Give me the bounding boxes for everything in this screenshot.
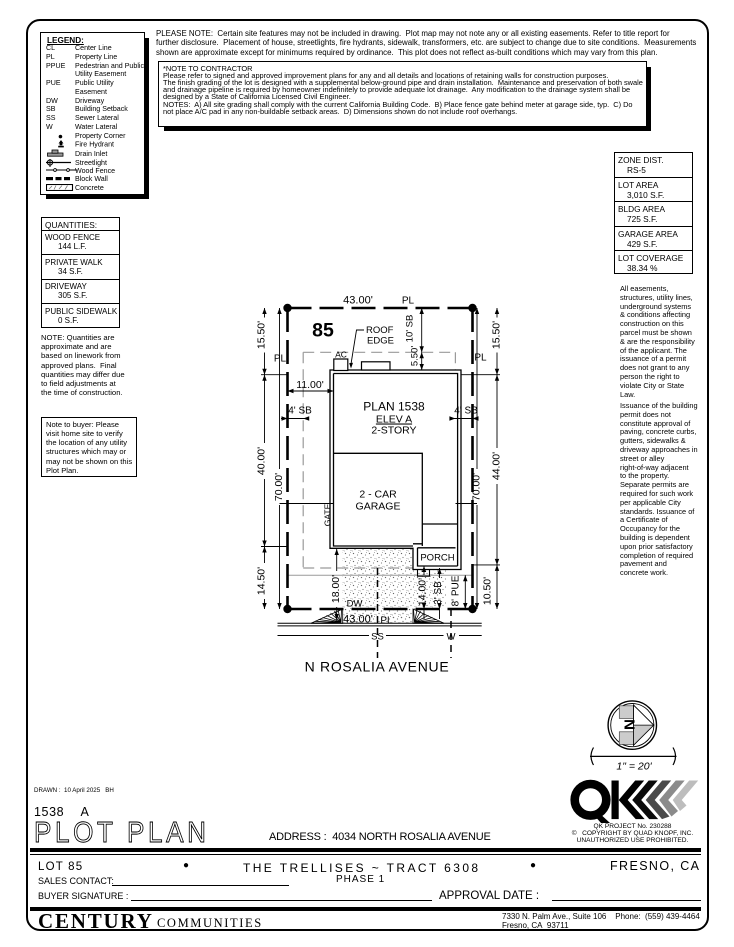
svg-text:43.00': 43.00' bbox=[343, 614, 373, 626]
svg-text:AC: AC bbox=[335, 350, 347, 360]
svg-text:DW: DW bbox=[347, 599, 363, 610]
svg-text:43.00': 43.00' bbox=[343, 295, 373, 307]
svg-text:PL: PL bbox=[274, 354, 287, 365]
svg-text:10.50': 10.50' bbox=[482, 577, 494, 605]
svg-text:1" = 20': 1" = 20' bbox=[616, 761, 652, 773]
svg-text:11.00': 11.00' bbox=[296, 379, 324, 391]
svg-text:2-STORY: 2-STORY bbox=[371, 425, 416, 437]
svg-text:3' SB: 3' SB bbox=[433, 581, 444, 605]
svg-text:8' PUE: 8' PUE bbox=[451, 575, 462, 606]
svg-text:N: N bbox=[621, 719, 638, 730]
svg-text:5.50': 5.50' bbox=[410, 346, 421, 366]
svg-text:14.50': 14.50' bbox=[256, 567, 268, 595]
svg-text:15.50': 15.50' bbox=[491, 321, 503, 349]
svg-text:EDGE: EDGE bbox=[367, 336, 394, 347]
svg-text:GARAGE: GARAGE bbox=[356, 501, 401, 513]
svg-text:SS: SS bbox=[371, 632, 384, 643]
svg-text:W: W bbox=[447, 632, 456, 643]
svg-text:4' SB: 4' SB bbox=[454, 406, 478, 417]
svg-text:PORCH: PORCH bbox=[420, 553, 454, 564]
svg-text:PL: PL bbox=[380, 616, 393, 627]
svg-text:18.00': 18.00' bbox=[330, 575, 342, 603]
svg-text:40.00': 40.00' bbox=[256, 447, 268, 475]
svg-text:44.00': 44.00' bbox=[491, 452, 503, 480]
svg-text:70.00': 70.00' bbox=[471, 473, 483, 501]
svg-text:PL: PL bbox=[402, 296, 415, 307]
svg-text:15.50': 15.50' bbox=[256, 321, 268, 349]
svg-text:70.00': 70.00' bbox=[273, 473, 285, 501]
svg-text:GATE: GATE bbox=[323, 503, 333, 526]
svg-text:4' SB: 4' SB bbox=[288, 406, 312, 417]
svg-text:N ROSALIA AVENUE: N ROSALIA AVENUE bbox=[305, 659, 450, 675]
svg-text:10' SB: 10' SB bbox=[405, 315, 416, 343]
svg-text:PL: PL bbox=[474, 353, 487, 364]
svg-text:2 - CAR: 2 - CAR bbox=[359, 489, 397, 501]
svg-text:ROOF: ROOF bbox=[366, 325, 394, 336]
svg-text:85: 85 bbox=[312, 320, 334, 342]
svg-text:PLAN 1538: PLAN 1538 bbox=[363, 400, 425, 414]
svg-text:14.00': 14.00' bbox=[417, 578, 429, 606]
